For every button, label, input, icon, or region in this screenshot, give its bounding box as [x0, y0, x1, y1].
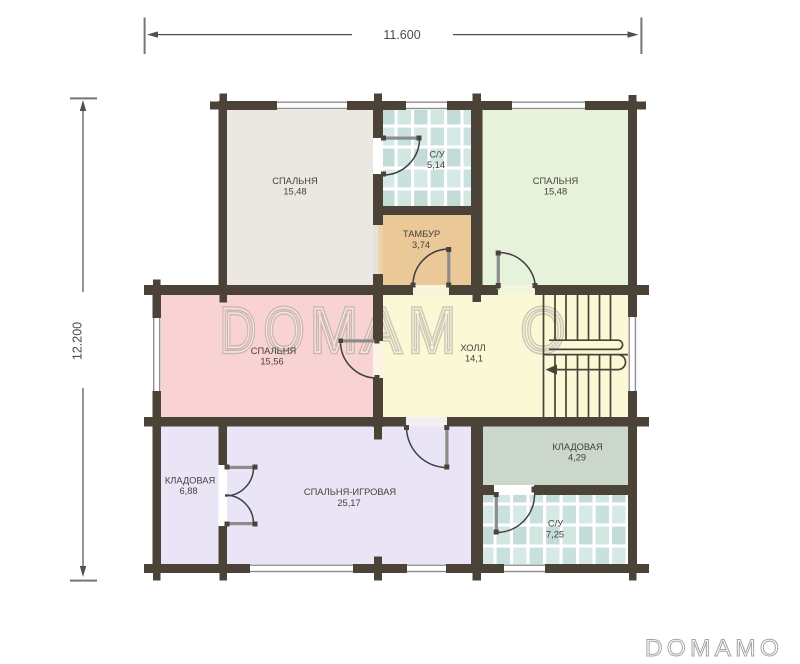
svg-text:11.600: 11.600 [383, 28, 420, 42]
svg-text:3,74: 3,74 [412, 240, 430, 250]
svg-text:15,48: 15,48 [544, 187, 567, 197]
svg-text:M: M [409, 296, 456, 366]
svg-text:DOMAMO: DOMAMO [645, 635, 783, 662]
svg-text:15,56: 15,56 [260, 357, 283, 367]
svg-text:С/У: С/У [429, 149, 444, 159]
svg-text:СПАЛЬНЯ: СПАЛЬНЯ [272, 176, 317, 186]
svg-text:M: M [311, 296, 358, 366]
svg-text:СПАЛЬНЯ: СПАЛЬНЯ [251, 346, 296, 356]
svg-text:12.200: 12.200 [71, 322, 85, 360]
svg-text:14,1: 14,1 [465, 354, 483, 364]
svg-text:4,29: 4,29 [568, 452, 586, 462]
svg-text:КЛАДОВАЯ: КЛАДОВАЯ [552, 442, 602, 452]
svg-text:КЛАДОВАЯ: КЛАДОВАЯ [165, 475, 215, 485]
svg-text:6,88: 6,88 [179, 486, 197, 496]
svg-text:С/У: С/У [548, 518, 563, 528]
svg-text:СПАЛЬНЯ: СПАЛЬНЯ [533, 176, 578, 186]
svg-text:ХОЛЛ: ХОЛЛ [460, 343, 485, 353]
svg-text:25,17: 25,17 [337, 498, 360, 508]
svg-text:СПАЛЬНЯ-ИГРОВАЯ: СПАЛЬНЯ-ИГРОВАЯ [304, 487, 396, 497]
svg-text:15,48: 15,48 [283, 187, 306, 197]
svg-text:5,14: 5,14 [427, 160, 445, 170]
svg-text:ТАМБУР: ТАМБУР [403, 229, 440, 239]
svg-text:7,25: 7,25 [546, 530, 564, 540]
